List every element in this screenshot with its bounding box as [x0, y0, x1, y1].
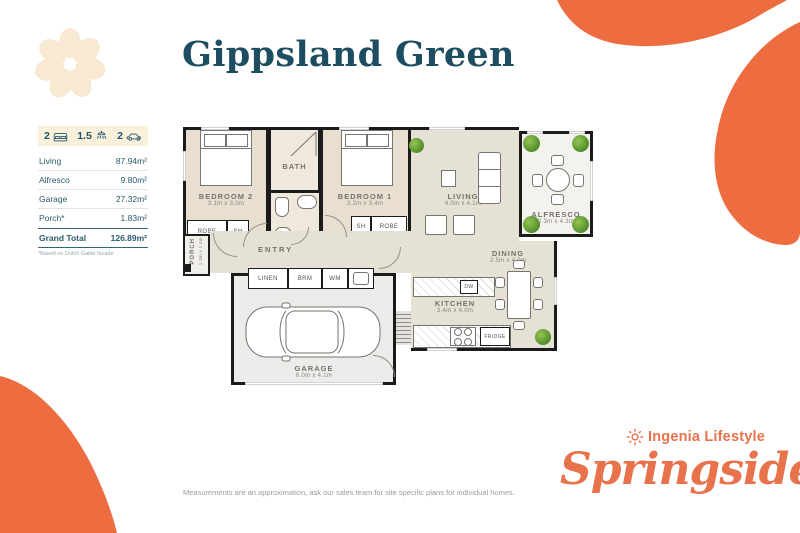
car-icon [126, 131, 142, 142]
kitchen-back-bench: FRIDGE [413, 325, 511, 348]
room-dims: 3.1m x 3.0m [186, 201, 266, 207]
window [427, 348, 457, 351]
bottom-left-blob [0, 376, 117, 533]
area-value: 1.83m² [121, 213, 147, 223]
top-right-blob [557, 0, 787, 46]
plant [409, 138, 424, 153]
fridge-label: FRIDGE [484, 334, 505, 340]
washing-machine: WM [322, 268, 348, 289]
brand-name: Ingenia Lifestyle [648, 429, 765, 445]
room-dims: 3.4m x 4.0m [417, 308, 493, 314]
area-row-garage: Garage 27.32m² [38, 190, 148, 209]
area-value: 87.94m² [116, 156, 147, 166]
window [527, 131, 543, 134]
room-alfresco: ALFRESCO 2.3m x 4.3m [519, 131, 593, 237]
armchair [425, 215, 447, 235]
window [201, 127, 229, 130]
window [590, 161, 593, 201]
pillow [345, 134, 367, 147]
outdoor-chair [573, 174, 584, 187]
dw-label: DW [464, 284, 473, 290]
area-row-porch: Porch* 1.83m² [38, 209, 148, 227]
room-label: ALFRESCO [522, 210, 590, 219]
room-dims: 1.3m x 1.4m [197, 226, 202, 276]
plant [572, 135, 589, 152]
outdoor-table [546, 168, 570, 192]
grand-total-label: Grand Total [39, 233, 86, 243]
tv-cabinet [441, 170, 456, 187]
baths-count: 1.5 [77, 130, 92, 142]
shower-screen [271, 131, 317, 157]
toilet [297, 195, 317, 209]
wm-label: WM [329, 276, 340, 282]
robe-label: ROBE [380, 224, 399, 230]
page-title: Gippsland Green [182, 34, 515, 75]
fridge: FRIDGE [480, 327, 510, 346]
sh-label: SH [356, 224, 365, 230]
area-label: Living [39, 156, 61, 166]
linen-cupboard: LINEN [248, 268, 288, 289]
porch-post [183, 264, 191, 272]
room-openplan: DINING 2.5m x 4.0m DW KITCHEN 3.4m x 4.0… [411, 241, 557, 351]
dining-chair [513, 260, 525, 269]
room-dims: 6.0m x 4.1m [264, 373, 364, 379]
window [183, 151, 186, 181]
toilet [275, 197, 289, 217]
laundry-tub [348, 268, 374, 289]
area-value: 9.80m² [121, 175, 147, 185]
kitchen-island-bench: DW [413, 277, 495, 297]
top-right-teardrop [715, 22, 800, 245]
cooktop [450, 327, 476, 346]
dining-chair [495, 277, 505, 288]
baths-stat: 1.5 [77, 130, 108, 142]
dining-chair [495, 299, 505, 310]
bed-line [201, 148, 251, 149]
outdoor-chair [551, 194, 564, 205]
dining-chair [533, 277, 543, 288]
area-row-living: Living 87.94m² [38, 152, 148, 171]
area-row-alfresco: Alfresco 9.80m² [38, 171, 148, 190]
room-dims: 2.3m x 4.3m [522, 219, 590, 225]
room-label: GARAGE [264, 364, 364, 373]
linen-label: LINEN [258, 276, 278, 282]
area-label: Porch* [39, 213, 65, 223]
stats-panel: 2 1.5 2 Living 87.94m² Alfresco [38, 126, 148, 257]
car-top-view [244, 302, 382, 362]
window [569, 131, 585, 134]
room-label: BEDROOM 2 [186, 192, 266, 201]
room-garage: GARAGE 6.0m x 4.1m [231, 273, 396, 385]
beds-count: 2 [44, 130, 50, 142]
outdoor-chair [532, 174, 543, 187]
area-label: Alfresco [39, 175, 70, 185]
grand-total-row: Grand Total 126.89m² [38, 228, 148, 248]
room-label: BEDROOM 1 [325, 192, 405, 201]
area-label: Garage [39, 194, 67, 204]
window [554, 277, 557, 305]
window [429, 127, 465, 130]
beds-stat: 2 [44, 130, 68, 142]
area-footnote: *Based on Dutch Gable facade [38, 251, 148, 257]
room-label: BATH [271, 162, 318, 171]
area-value: 27.32m² [116, 194, 147, 204]
bed-icon [53, 131, 68, 142]
pillow [367, 134, 389, 147]
cars-count: 2 [117, 130, 123, 142]
brand-logo: Ingenia Lifestyle Springside [560, 428, 765, 492]
plant [523, 135, 540, 152]
pillow [204, 134, 226, 147]
room-bath: BATH [269, 127, 321, 193]
room-dims: 3.2m x 3.4m [325, 201, 405, 207]
community-name: Springside [560, 448, 765, 492]
floor-plan: BEDROOM 2 3.1m x 3.0m ROBE SH BATH WC BE… [183, 127, 595, 389]
dining-chair [533, 299, 543, 310]
bed [200, 130, 252, 186]
window [339, 127, 369, 130]
flower-icon [32, 28, 107, 101]
brm-label: BRM [298, 276, 313, 282]
dining-table [507, 271, 531, 319]
disclaimer-text: Measurements are an approximation, ask o… [183, 488, 515, 497]
dining-chair [513, 321, 525, 330]
garage-door [245, 382, 383, 385]
bed [341, 130, 393, 186]
shower-icon [95, 130, 108, 142]
bed-line [342, 148, 392, 149]
room-label: KITCHEN [417, 299, 493, 308]
plant [535, 329, 551, 345]
room-dims: 2.5m x 4.0m [473, 258, 543, 264]
area-table: Living 87.94m² Alfresco 9.80m² Garage 27… [38, 152, 148, 257]
outdoor-chair [551, 155, 564, 166]
room-label: DINING [473, 249, 543, 258]
armchair [453, 215, 475, 235]
steps [396, 311, 411, 345]
pillow [226, 134, 248, 147]
stats-icon-row: 2 1.5 2 [38, 126, 148, 146]
dishwasher: DW [460, 280, 478, 294]
cars-stat: 2 [117, 130, 142, 142]
broom-cupboard: BRM [288, 268, 322, 289]
grand-total-value: 126.89m² [111, 233, 147, 243]
sofa [478, 152, 501, 204]
